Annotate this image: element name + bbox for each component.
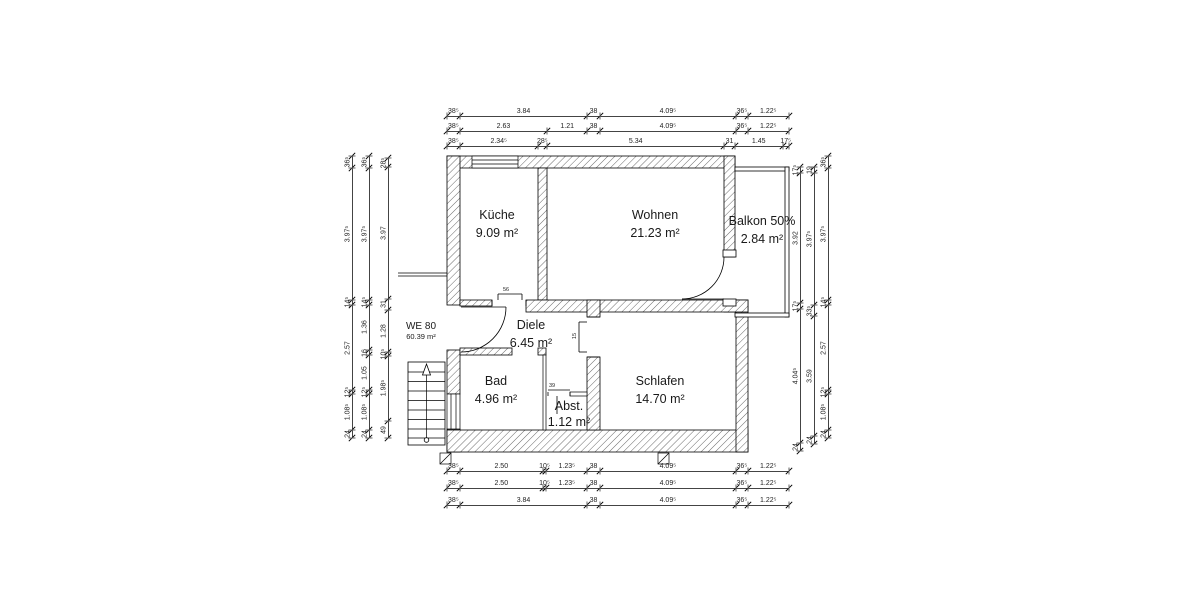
kueche-door-threshold [492, 294, 526, 306]
unit-label: WE 80 60.39 m² [406, 321, 436, 341]
dim-hair [599, 468, 600, 475]
dim-label: 38⁵ [448, 108, 459, 115]
dim-label: 38 [590, 463, 598, 470]
dim-hair [459, 128, 460, 135]
dim-hair [599, 485, 600, 492]
dim-hair [587, 502, 588, 509]
dim-label: 1.23⁵ [559, 480, 576, 487]
dim-label: 36⁵ [345, 157, 352, 168]
dim-label: 2.50 [494, 480, 508, 487]
dim-hair [366, 168, 373, 169]
dim-label: 1.08⁵ [345, 404, 352, 421]
dim-hair [788, 128, 789, 135]
dim-hair [546, 468, 547, 475]
dim-label: 1.22⁵ [760, 497, 777, 504]
abst-partition [570, 392, 587, 396]
room-label-wohnen: Wohnen 21.23 m² [630, 206, 679, 242]
dim-hair [349, 304, 356, 305]
dim-line [447, 471, 789, 472]
dim-hair [599, 128, 600, 135]
room-area: 2.84 m² [729, 230, 796, 248]
dim-label: 38⁵ [448, 123, 459, 130]
room-label-bad: Bad 4.96 m² [475, 372, 517, 408]
dim-label: 31 [726, 138, 734, 145]
dim-label: 31 [381, 301, 388, 309]
dim-hair [788, 113, 789, 120]
dim-label: 3.97⁵ [821, 226, 828, 243]
dim-label: 36⁵ [737, 463, 748, 470]
dim-hair [747, 468, 748, 475]
dim-label: 4.09⁵ [660, 463, 677, 470]
dim-hair [788, 143, 789, 150]
dim-hair [734, 143, 735, 150]
room-label-abst: Abst. 1.12 m² [548, 398, 590, 430]
dim-label: 3.97 [381, 227, 388, 241]
dim-label: 38⁵ [448, 463, 459, 470]
dim-label: 5.34 [629, 138, 643, 145]
dim-hair [366, 304, 373, 305]
dim-label: 1.28 [381, 324, 388, 338]
dim-label: 38 [590, 108, 598, 115]
dim-label: 36⁵ [737, 123, 748, 130]
dim-label: 1.05 [362, 366, 369, 380]
dim-hair [747, 128, 748, 135]
dim-hair [797, 451, 804, 452]
room-name: Wohnen [630, 206, 679, 224]
dim-label: 2.57 [345, 341, 352, 355]
dim-label: 4.09⁵ [660, 108, 677, 115]
dim-hair [747, 113, 748, 120]
dim-hair [547, 128, 548, 135]
room-name: Diele [510, 316, 552, 334]
dim-hair [825, 304, 832, 305]
unit-area: 60.39 m² [406, 332, 436, 341]
dim-label: 36⁵ [737, 497, 748, 504]
dim-hair [385, 421, 392, 422]
micro-dim-kueche-door: 56 [503, 287, 509, 293]
dim-hair [788, 502, 789, 509]
room-name: Abst. [548, 398, 590, 414]
dim-label: 3.92 [793, 231, 800, 245]
dim-label: 1.22⁵ [760, 123, 777, 130]
room-name: Küche [476, 206, 518, 224]
dim-label: 36⁵ [821, 157, 828, 168]
dim-hair [788, 485, 789, 492]
dim-hair [366, 394, 373, 395]
room-name: Schlafen [635, 372, 684, 390]
dim-label: 49 [381, 426, 388, 434]
dim-label: 3.97⁵ [345, 226, 352, 243]
floorplan-drawing [0, 0, 1200, 600]
dim-label: 4.09⁵ [660, 497, 677, 504]
dim-line [447, 488, 789, 489]
room-area: 14.70 m² [635, 390, 684, 408]
dim-label: 38⁵ [448, 138, 459, 145]
room-label-schlafen: Schlafen 14.70 m² [635, 372, 684, 408]
dim-label: 1.08⁵ [821, 404, 828, 421]
room-name: Bad [475, 372, 517, 390]
dim-label: 3.59 [807, 369, 814, 383]
bad-partition [543, 355, 546, 430]
dim-hair [587, 468, 588, 475]
dim-hair [747, 485, 748, 492]
dim-label: 2.34⁵ [490, 138, 507, 145]
dim-hair [811, 316, 818, 317]
adjacent-wall-line [398, 273, 447, 276]
dim-hair [797, 172, 804, 173]
dim-label: 3.84 [517, 108, 531, 115]
dim-hair [599, 113, 600, 120]
dim-label: 38⁵ [448, 497, 459, 504]
balcony-door [682, 257, 724, 299]
schlafen-door-threshold [579, 317, 600, 357]
room-area: 9.09 m² [476, 224, 518, 242]
dim-label: 4.04⁵ [793, 368, 800, 385]
dim-label: 1.98⁵ [381, 380, 388, 397]
dim-hair [385, 167, 392, 168]
dim-hair [825, 394, 832, 395]
dim-label: 1.22⁵ [760, 463, 777, 470]
dim-label: 3.97⁵ [362, 226, 369, 243]
dim-hair [385, 309, 392, 310]
section-markers [440, 453, 669, 464]
dim-label: 4.09⁵ [660, 480, 677, 487]
dim-line [447, 505, 789, 506]
dim-hair [459, 468, 460, 475]
dim-label: 2.50 [494, 463, 508, 470]
floorplan-canvas: Küche 9.09 m² Wohnen 21.23 m² Balkon 50%… [0, 0, 1200, 600]
dim-label: 36⁵ [737, 480, 748, 487]
dim-label: 1.08⁵ [362, 404, 369, 421]
dim-label: 33⁵ [807, 305, 814, 316]
dim-label: 3.97⁵ [807, 231, 814, 248]
dim-label: 36⁵ [362, 157, 369, 168]
room-label-balkon: Balkon 50% 2.84 m² [729, 212, 796, 248]
dim-label: 1.45 [752, 138, 766, 145]
room-area: 6.45 m² [510, 334, 552, 352]
dim-label: 38⁵ [448, 480, 459, 487]
dim-line [447, 131, 789, 132]
micro-dim-schlafen-door: 15 [572, 333, 578, 339]
dim-label: 2.63 [497, 123, 511, 130]
dim-hair [599, 502, 600, 509]
dim-hair [797, 308, 804, 309]
staircase [408, 362, 445, 445]
dim-hair [587, 128, 588, 135]
dim-hair [349, 438, 356, 439]
micro-dim-abst-door: 39 [549, 383, 555, 389]
dim-hair [587, 485, 588, 492]
dim-hair [459, 113, 460, 120]
dim-hair [811, 173, 818, 174]
dim-line [447, 116, 789, 117]
dim-hair [547, 143, 548, 150]
dim-label: 1.23⁵ [559, 463, 576, 470]
dim-label: 36⁵ [737, 108, 748, 115]
room-area: 1.12 m² [548, 414, 590, 430]
dim-hair [587, 113, 588, 120]
room-area: 4.96 m² [475, 390, 517, 408]
dim-hair [811, 443, 818, 444]
room-name: Balkon 50% [729, 212, 796, 230]
dim-label: 1.22⁵ [760, 480, 777, 487]
dim-label: 38 [590, 123, 598, 130]
dim-label: 4.09⁵ [660, 123, 677, 130]
dim-hair [366, 355, 373, 356]
kueche-window [472, 156, 518, 168]
dim-line [447, 146, 789, 147]
dim-label: 1.22⁵ [760, 108, 777, 115]
bad-window [447, 394, 460, 429]
room-area: 21.23 m² [630, 224, 679, 242]
dim-hair [546, 485, 547, 492]
dim-label: 2.57 [821, 341, 828, 355]
dim-hair [366, 438, 373, 439]
dim-hair [825, 168, 832, 169]
dim-hair [788, 468, 789, 475]
dim-hair [349, 394, 356, 395]
dim-hair [459, 485, 460, 492]
dim-label: 38 [590, 497, 598, 504]
room-label-diele: Diele 6.45 m² [510, 316, 552, 352]
unit-name: WE 80 [406, 321, 436, 332]
dim-label: 3.84 [517, 497, 531, 504]
dim-hair [825, 438, 832, 439]
dim-hair [385, 437, 392, 438]
dim-hair [459, 502, 460, 509]
dim-hair [349, 168, 356, 169]
dim-label: 1.36 [362, 321, 369, 335]
entrance-door [461, 307, 506, 352]
dim-hair [459, 143, 460, 150]
dim-label: 38 [590, 480, 598, 487]
room-label-kueche: Küche 9.09 m² [476, 206, 518, 242]
dim-hair [747, 502, 748, 509]
dim-hair [385, 355, 392, 356]
dim-label: 1.21 [560, 123, 574, 130]
